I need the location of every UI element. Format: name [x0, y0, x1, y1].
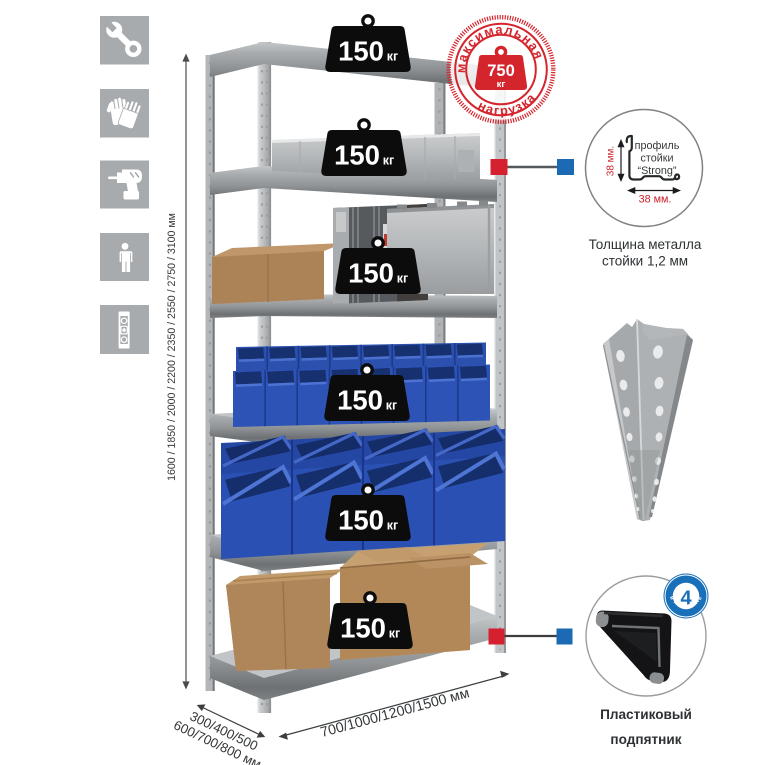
svg-text:кг: кг [497, 79, 506, 90]
svg-text:150: 150 [340, 613, 386, 644]
svg-text:38 мм.: 38 мм. [606, 146, 617, 176]
svg-text:150: 150 [337, 385, 383, 416]
svg-text:стойки 1,2 мм: стойки 1,2 мм [602, 254, 688, 269]
svg-text:150: 150 [338, 36, 384, 67]
svg-text:1600 / 1850 / 2000 / 2200 / 23: 1600 / 1850 / 2000 / 2200 / 2350 / 2550 … [166, 213, 178, 481]
svg-text:Толщина металла: Толщина металла [589, 237, 702, 252]
svg-text:кг: кг [397, 272, 408, 286]
svg-text:150: 150 [338, 505, 384, 536]
svg-text:38 мм.: 38 мм. [639, 194, 672, 206]
svg-text:профиль: профиль [635, 140, 680, 152]
svg-text:стойки: стойки [640, 153, 673, 165]
svg-text:150: 150 [348, 258, 394, 289]
svg-text:кг: кг [387, 519, 398, 533]
svg-text:подпятник: подпятник [610, 732, 681, 747]
svg-text:кг: кг [386, 399, 397, 413]
svg-text:“Strong”: “Strong” [637, 165, 676, 177]
svg-text:кг: кг [383, 154, 394, 168]
svg-text:Пластиковый: Пластиковый [600, 707, 692, 722]
svg-text:кг: кг [389, 627, 400, 641]
svg-text:кг: кг [387, 50, 398, 64]
svg-text:750: 750 [487, 62, 515, 80]
svg-text:150: 150 [334, 140, 380, 171]
